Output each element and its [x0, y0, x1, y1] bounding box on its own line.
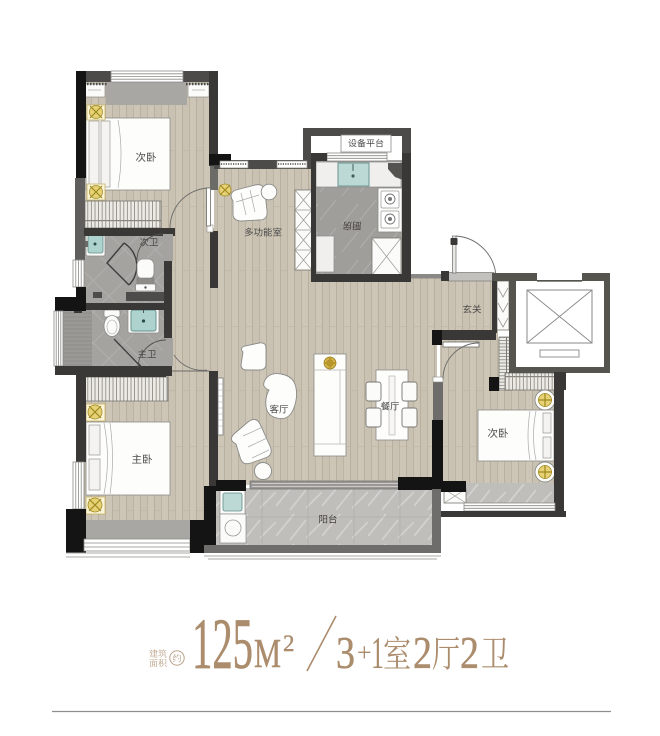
svg-text:2: 2 [460, 628, 479, 678]
svg-text:2: 2 [283, 631, 295, 656]
svg-text:3: 3 [336, 628, 355, 678]
svg-text:2: 2 [413, 628, 432, 678]
svg-text:+: + [357, 638, 372, 667]
svg-text:1: 1 [371, 628, 384, 678]
svg-text:M: M [254, 630, 281, 676]
svg-text:125: 125 [192, 604, 253, 684]
